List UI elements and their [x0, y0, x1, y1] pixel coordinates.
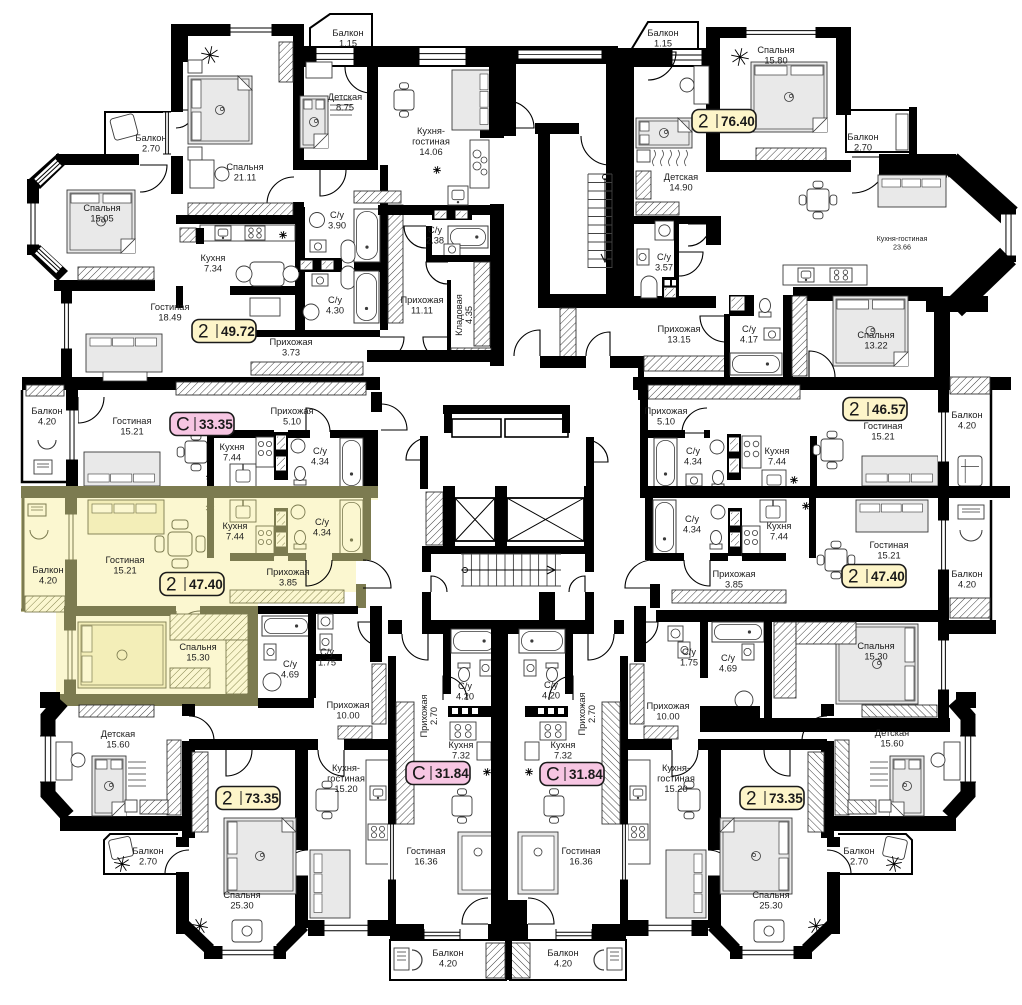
svg-text:С/у4.34: С/у4.34 — [684, 446, 702, 467]
svg-text:2: 2 — [849, 400, 860, 421]
svg-text:С/у4.34: С/у4.34 — [313, 517, 331, 538]
svg-text:46.57: 46.57 — [872, 402, 906, 417]
svg-text:2: 2 — [222, 789, 233, 810]
svg-text:2: 2 — [698, 112, 709, 133]
svg-text:33.35: 33.35 — [199, 417, 233, 432]
svg-text:73.35: 73.35 — [245, 791, 279, 806]
svg-text:С/у4.69: С/у4.69 — [719, 653, 737, 674]
svg-text:С/у3.90: С/у3.90 — [328, 210, 346, 231]
svg-text:73.35: 73.35 — [769, 791, 803, 806]
svg-text:47.40: 47.40 — [189, 577, 223, 592]
svg-text:47.40: 47.40 — [871, 569, 905, 584]
svg-text:Кухня7.32: Кухня7.32 — [449, 740, 474, 761]
svg-text:2: 2 — [848, 567, 859, 588]
svg-text:2: 2 — [198, 322, 209, 343]
svg-text:С/у1.75: С/у1.75 — [318, 647, 336, 668]
svg-text:31.84: 31.84 — [569, 767, 603, 782]
svg-text:С: С — [546, 765, 560, 786]
svg-text:С: С — [412, 764, 426, 785]
svg-text:Кухня7.32: Кухня7.32 — [551, 740, 576, 761]
svg-text:2: 2 — [746, 789, 757, 810]
svg-text:С/у4.20: С/у4.20 — [456, 681, 474, 702]
svg-text:Кухня7.44: Кухня7.44 — [767, 521, 792, 542]
svg-text:Кухня7.34: Кухня7.34 — [201, 253, 226, 274]
svg-text:С/у4.34: С/у4.34 — [683, 514, 701, 535]
svg-text:С/у3.57: С/у3.57 — [655, 252, 673, 273]
svg-text:С/у4.30: С/у4.30 — [326, 295, 344, 316]
svg-text:С/у1.75: С/у1.75 — [680, 647, 698, 668]
svg-text:2: 2 — [166, 575, 177, 596]
svg-text:С/у4.34: С/у4.34 — [311, 446, 329, 467]
svg-text:С/у4.17: С/у4.17 — [740, 324, 758, 345]
svg-text:С/у4.69: С/у4.69 — [281, 659, 299, 680]
svg-text:Кухня7.44: Кухня7.44 — [220, 442, 245, 463]
svg-text:С/у2.38: С/у2.38 — [426, 225, 444, 246]
svg-text:31.84: 31.84 — [435, 766, 469, 781]
svg-text:С: С — [176, 415, 190, 436]
svg-text:76.40: 76.40 — [721, 114, 755, 129]
svg-text:С/у4.20: С/у4.20 — [542, 680, 560, 701]
svg-text:Кухня7.44: Кухня7.44 — [765, 446, 790, 467]
svg-text:49.72: 49.72 — [221, 324, 255, 339]
svg-text:Кухня7.44: Кухня7.44 — [223, 521, 248, 542]
